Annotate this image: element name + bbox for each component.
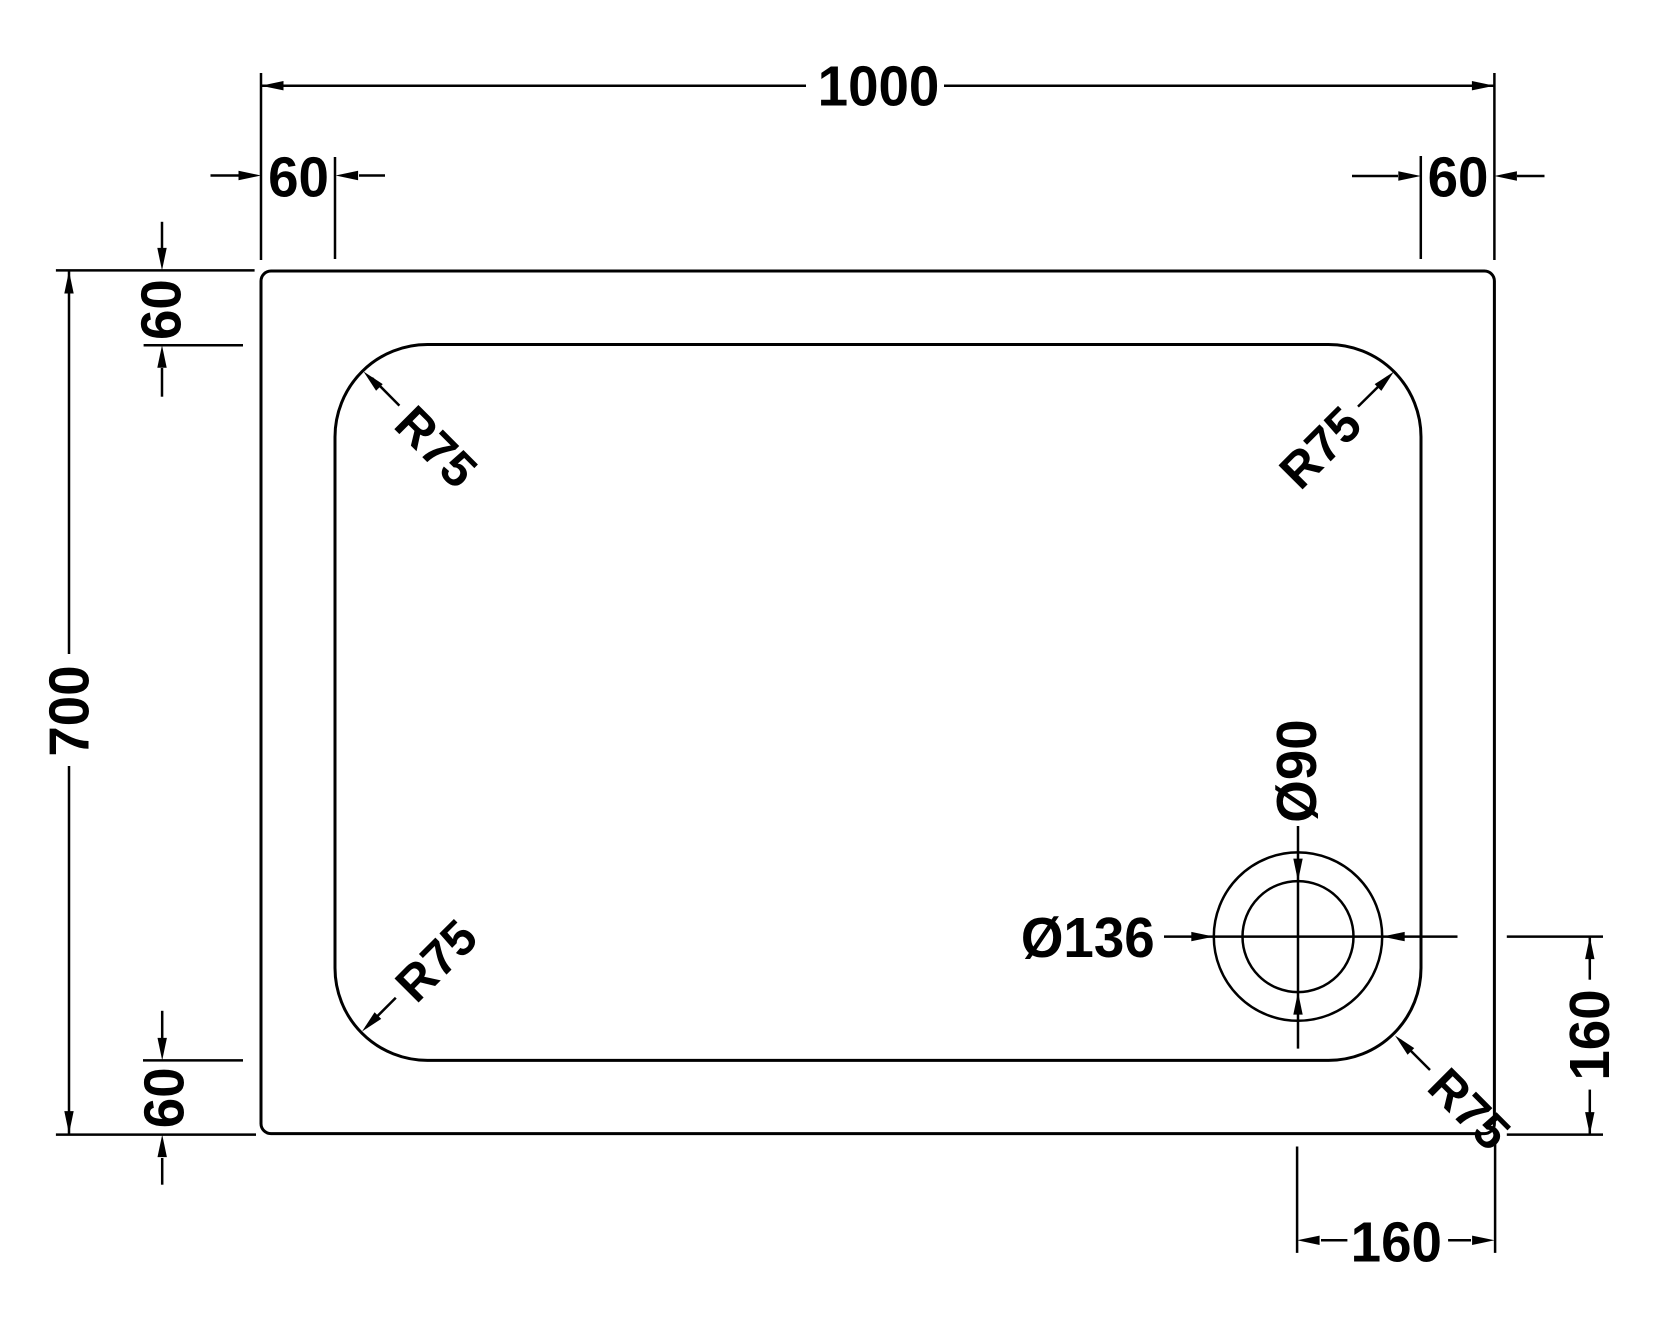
svg-text:1000: 1000	[818, 53, 940, 117]
svg-text:160: 160	[1351, 1209, 1442, 1273]
svg-text:60: 60	[1428, 144, 1489, 208]
svg-text:R75: R75	[384, 396, 487, 499]
svg-text:60: 60	[268, 144, 329, 208]
svg-text:R75: R75	[1417, 1058, 1520, 1161]
svg-text:700: 700	[36, 665, 100, 756]
svg-text:Ø90: Ø90	[1264, 719, 1328, 822]
svg-text:R75: R75	[1269, 396, 1372, 499]
svg-text:R75: R75	[385, 910, 488, 1013]
svg-text:60: 60	[131, 1067, 195, 1128]
svg-text:60: 60	[128, 279, 192, 340]
svg-text:Ø136: Ø136	[1021, 905, 1155, 969]
svg-text:160: 160	[1557, 989, 1621, 1080]
